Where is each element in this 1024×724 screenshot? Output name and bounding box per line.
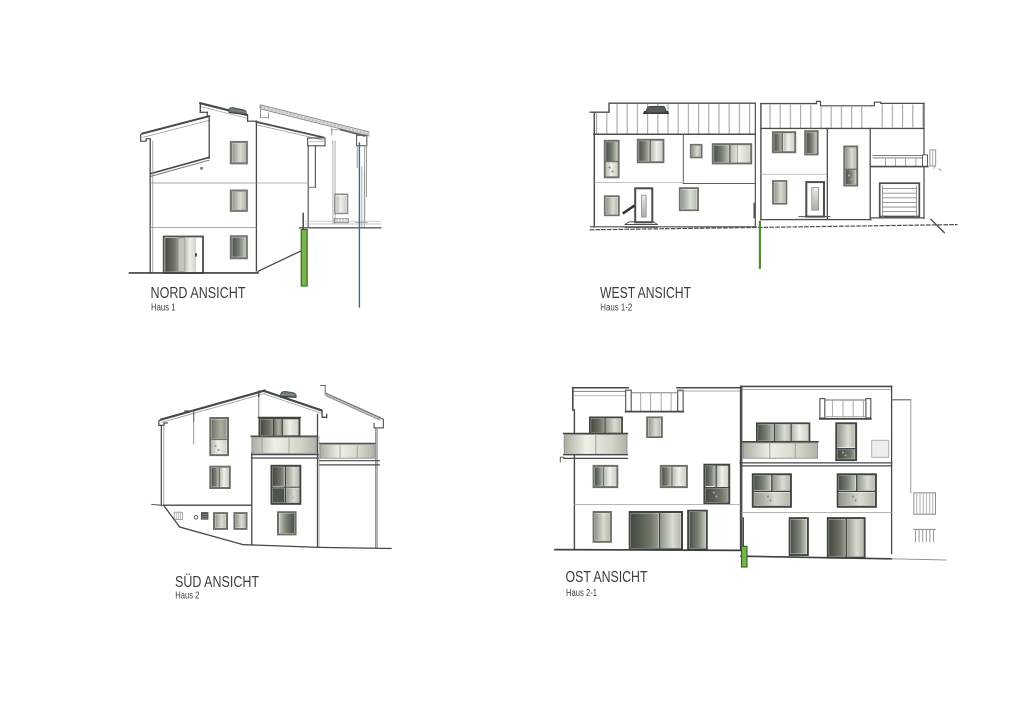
svg-text:NORD ANSICHT: NORD ANSICHT <box>151 285 246 302</box>
svg-text:OST ANSICHT: OST ANSICHT <box>566 569 648 586</box>
svg-text:Haus 1-2: Haus 1-2 <box>600 303 632 314</box>
svg-text:Haus 1: Haus 1 <box>151 303 176 314</box>
svg-text:WEST ANSICHT: WEST ANSICHT <box>600 285 691 302</box>
svg-text:SÜD ANSICHT: SÜD ANSICHT <box>175 573 259 591</box>
svg-text:Haus 2-1: Haus 2-1 <box>566 588 597 599</box>
svg-text:Haus 2: Haus 2 <box>175 591 199 602</box>
